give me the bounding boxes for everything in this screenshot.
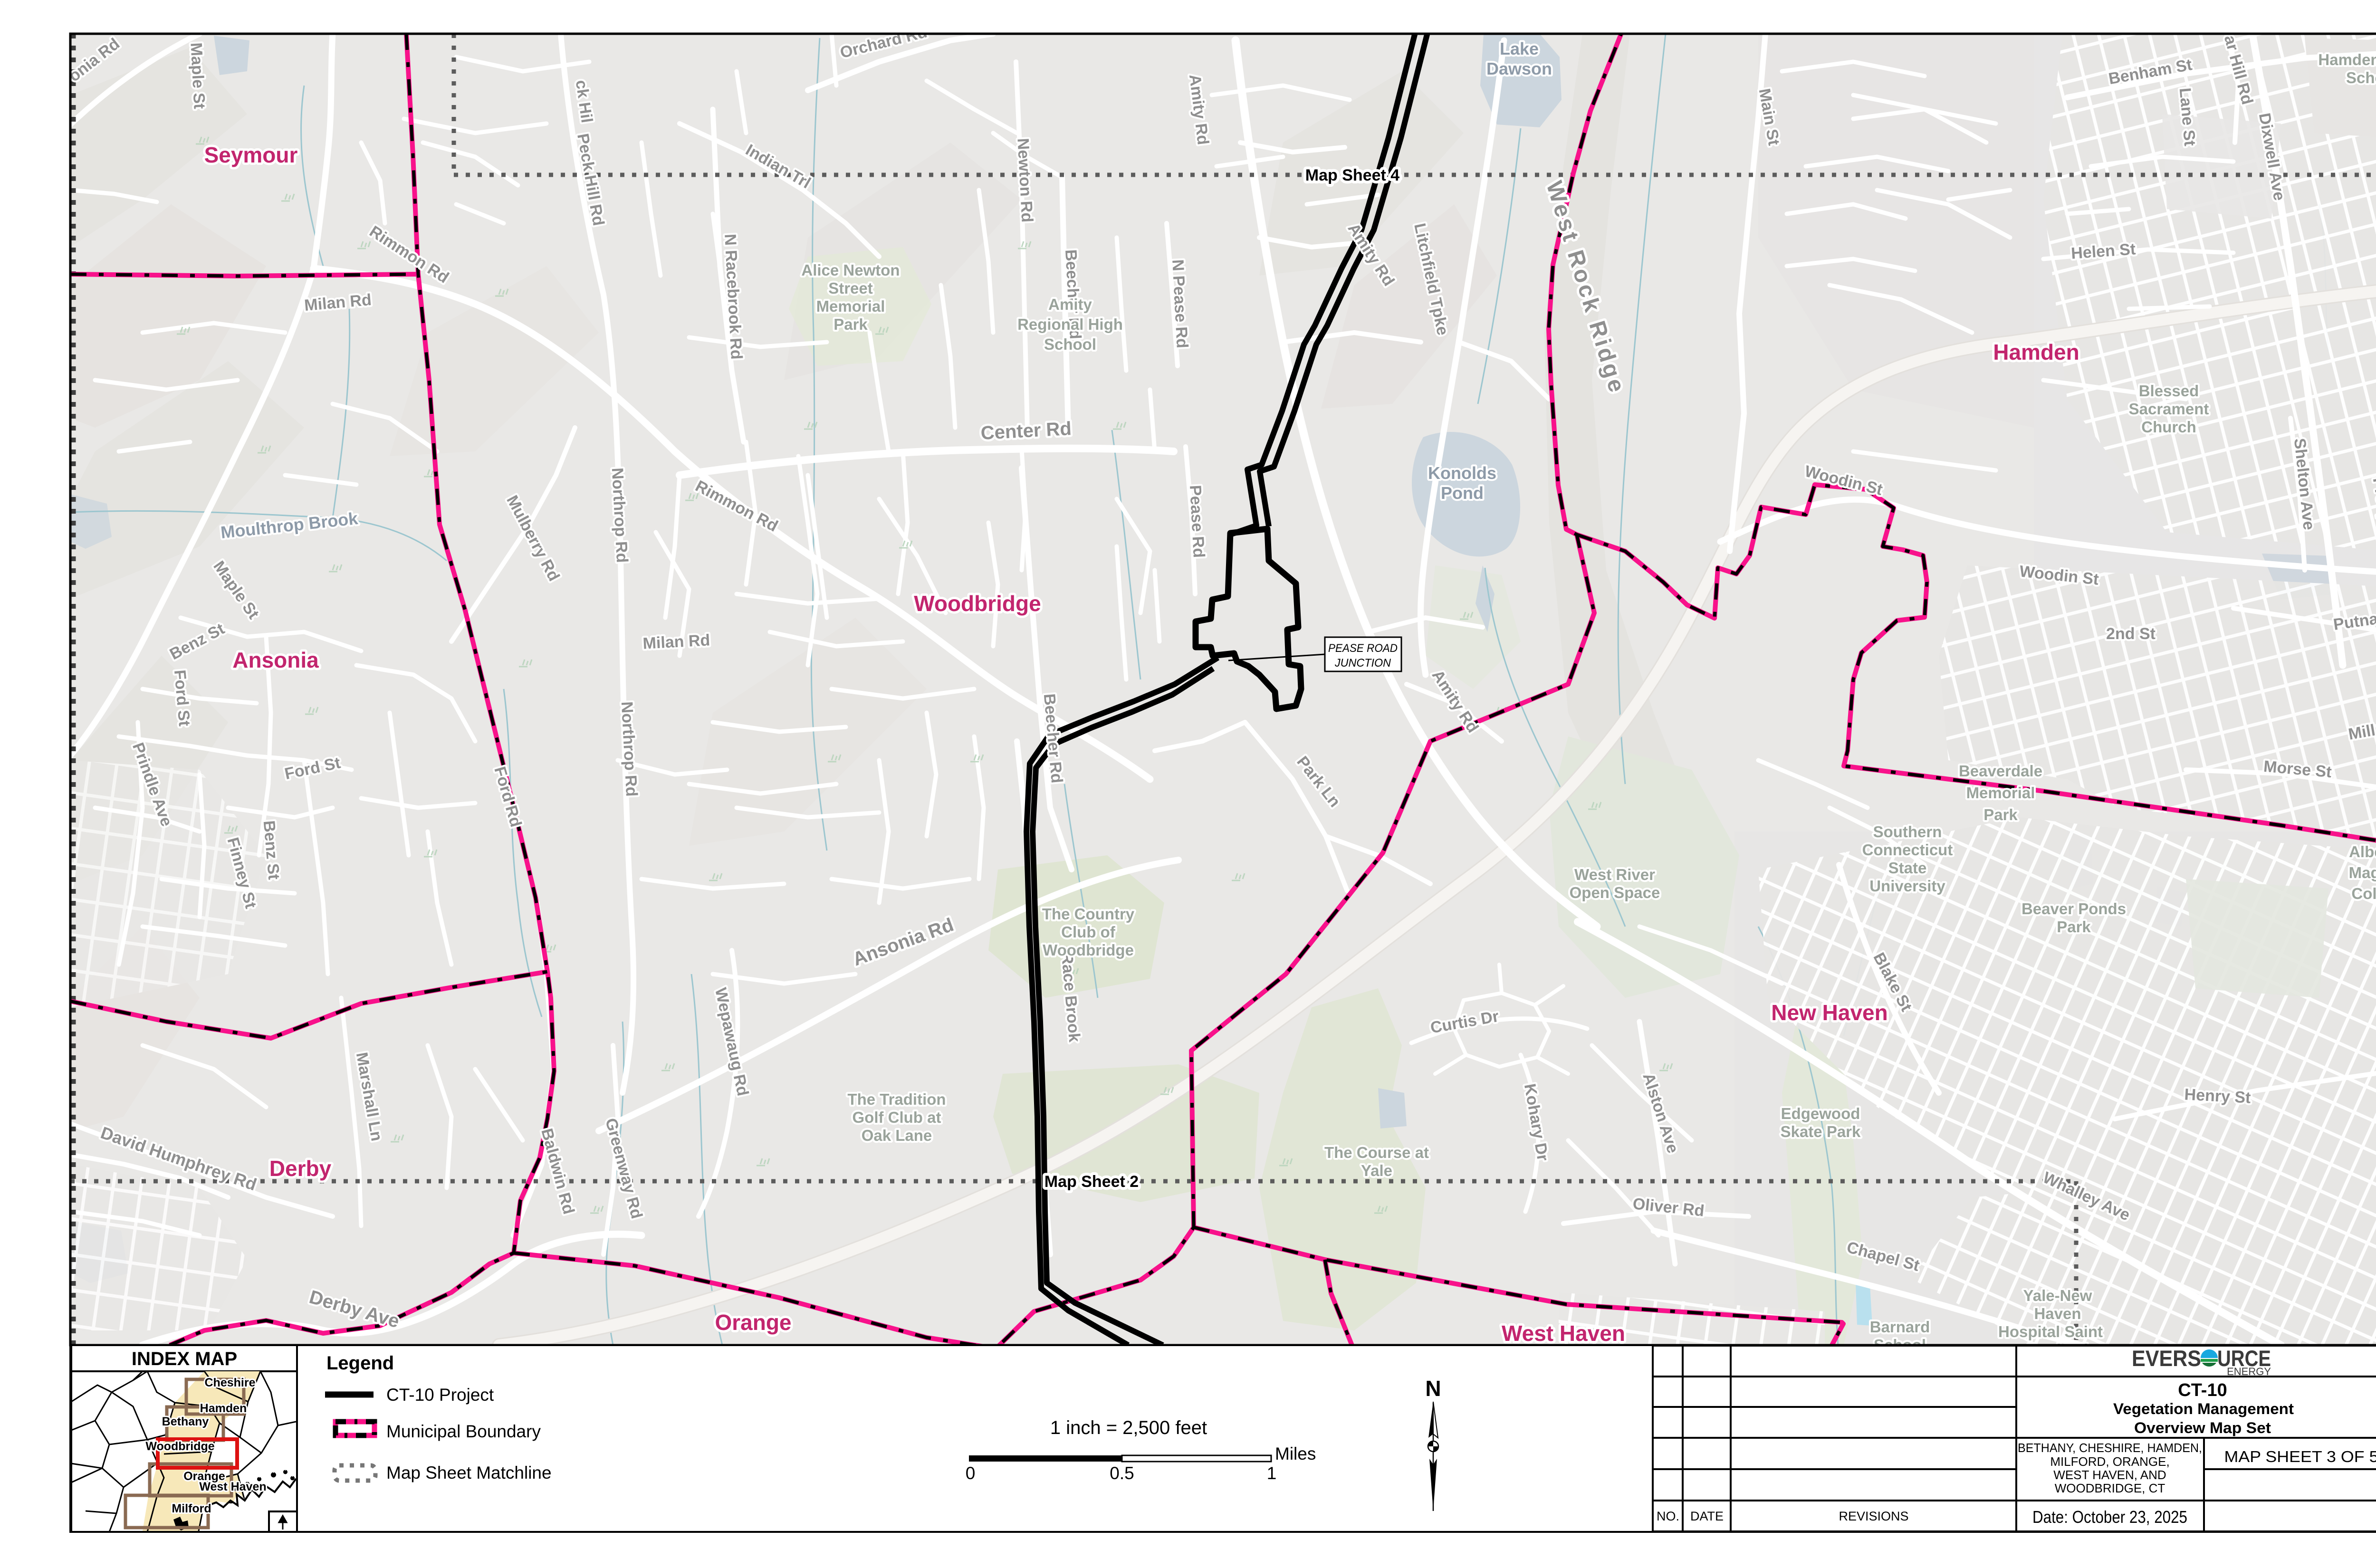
- svg-text:Map Sheet 4: Map Sheet 4: [1305, 166, 1399, 184]
- svg-text:Maple St: Maple St: [187, 42, 208, 110]
- svg-text:Albertus: Albertus: [2349, 843, 2376, 860]
- svg-text:Hamden: Hamden: [1993, 340, 2079, 364]
- svg-text:Yale: Yale: [1361, 1162, 1392, 1179]
- svg-text:School: School: [2346, 69, 2376, 86]
- svg-text:Hamden H: Hamden H: [2318, 51, 2376, 68]
- svg-text:Woodbridge: Woodbridge: [1043, 941, 1134, 959]
- svg-text:Dawson: Dawson: [1486, 59, 1552, 78]
- svg-text:Connecticut: Connecticut: [1862, 841, 1953, 859]
- svg-text:REVISIONS: REVISIONS: [1839, 1509, 1908, 1523]
- svg-text:Orange: Orange: [715, 1310, 791, 1335]
- svg-text:1: 1: [1267, 1463, 1277, 1483]
- svg-text:Memorial: Memorial: [1966, 784, 2035, 802]
- svg-text:Milford: Milford: [172, 1502, 211, 1515]
- svg-text:Amity: Amity: [1048, 296, 1092, 313]
- svg-text:Seymour: Seymour: [204, 143, 298, 167]
- svg-text:The Country: The Country: [1042, 905, 1135, 923]
- svg-text:The Tradition: The Tradition: [847, 1090, 946, 1108]
- svg-text:Park: Park: [834, 316, 868, 333]
- svg-text:Open Space: Open Space: [1570, 884, 1660, 901]
- svg-text:The Course at: The Course at: [1324, 1144, 1429, 1161]
- svg-text:Beaverdale: Beaverdale: [1959, 762, 2042, 780]
- svg-text:Yale-New: Yale-New: [2023, 1287, 2092, 1304]
- svg-text:West Haven: West Haven: [1502, 1321, 1625, 1346]
- svg-text:PEASE ROAD: PEASE ROAD: [1328, 642, 1398, 655]
- svg-text:ENERGY: ENERGY: [2227, 1366, 2271, 1377]
- svg-text:Cheshire: Cheshire: [205, 1376, 256, 1389]
- svg-text:Pease Rd: Pease Rd: [1186, 485, 1208, 558]
- svg-text:1 inch = 2,500 feet: 1 inch = 2,500 feet: [1050, 1417, 1207, 1438]
- svg-text:CT-10: CT-10: [2178, 1380, 2227, 1400]
- svg-text:WEST HAVEN, AND: WEST HAVEN, AND: [2053, 1468, 2166, 1482]
- svg-text:2nd St: 2nd St: [2106, 625, 2156, 643]
- svg-text:Konolds: Konolds: [1428, 463, 1496, 483]
- svg-text:Pond: Pond: [1441, 483, 1484, 503]
- svg-text:Woodbridge: Woodbridge: [914, 591, 1041, 616]
- svg-text:BETHANY, CHESHIRE, HAMDEN,: BETHANY, CHESHIRE, HAMDEN,: [2018, 1441, 2202, 1455]
- svg-text:Henry St: Henry St: [2184, 1085, 2251, 1107]
- svg-text:Hospital Saint: Hospital Saint: [1998, 1323, 2103, 1340]
- svg-text:Date: October 23, 2025: Date: October 23, 2025: [2032, 1507, 2187, 1527]
- svg-text:MAP SHEET 3 OF 5: MAP SHEET 3 OF 5: [2224, 1448, 2376, 1465]
- svg-text:Club of: Club of: [1061, 923, 1116, 941]
- svg-text:WOODBRIDGE, CT: WOODBRIDGE, CT: [2055, 1481, 2165, 1495]
- svg-text:Southern: Southern: [1873, 823, 1942, 841]
- svg-text:Barnard: Barnard: [1870, 1318, 1930, 1336]
- svg-text:Park: Park: [1983, 806, 2018, 823]
- svg-text:Edgewood: Edgewood: [1781, 1105, 1860, 1122]
- svg-text:Map Sheet Matchline: Map Sheet Matchline: [386, 1463, 552, 1482]
- svg-text:NO.: NO.: [1657, 1509, 1679, 1523]
- svg-text:Street: Street: [828, 279, 873, 297]
- svg-text:Overview Map Set: Overview Map Set: [2134, 1419, 2271, 1436]
- svg-text:Derby: Derby: [269, 1156, 332, 1181]
- svg-text:Milan Rd: Milan Rd: [642, 631, 710, 652]
- svg-text:Magnus: Magnus: [2349, 864, 2376, 881]
- svg-text:Skate Park: Skate Park: [1781, 1123, 1861, 1140]
- svg-text:Haven: Haven: [2034, 1305, 2081, 1322]
- svg-text:INDEX MAP: INDEX MAP: [132, 1348, 237, 1369]
- svg-text:Bethany: Bethany: [162, 1415, 209, 1428]
- svg-text:College: College: [2351, 885, 2376, 902]
- svg-text:Vegetation Management: Vegetation Management: [2113, 1400, 2294, 1417]
- svg-text:University: University: [1869, 877, 1945, 895]
- svg-text:Oak Lane: Oak Lane: [862, 1127, 932, 1144]
- svg-text:Map Sheet 2: Map Sheet 2: [1044, 1173, 1139, 1191]
- svg-text:CT-10 Project: CT-10 Project: [386, 1385, 494, 1405]
- svg-text:Hamden: Hamden: [200, 1402, 247, 1415]
- svg-text:West Haven: West Haven: [199, 1480, 266, 1493]
- svg-text:Church: Church: [2141, 418, 2196, 436]
- svg-text:Park: Park: [2057, 918, 2091, 936]
- svg-text:Golf Club at: Golf Club at: [853, 1109, 941, 1126]
- svg-text:Municipal Boundary: Municipal Boundary: [386, 1422, 541, 1441]
- svg-text:0.5: 0.5: [1110, 1463, 1134, 1483]
- svg-text:Regional High: Regional High: [1017, 316, 1123, 333]
- svg-text:Alice Newton: Alice Newton: [801, 261, 900, 279]
- svg-text:New Haven: New Haven: [1771, 1000, 1887, 1025]
- svg-text:Ansonia: Ansonia: [232, 648, 319, 672]
- svg-text:State: State: [1888, 859, 1927, 877]
- svg-text:JUNCTION: JUNCTION: [1334, 657, 1391, 669]
- svg-text:Sacrament: Sacrament: [2129, 400, 2209, 418]
- svg-text:DATE: DATE: [1690, 1509, 1724, 1523]
- svg-text:MILFORD, ORANGE,: MILFORD, ORANGE,: [2050, 1454, 2169, 1469]
- svg-text:School: School: [1044, 335, 1096, 353]
- svg-text:Blessed: Blessed: [2139, 382, 2199, 400]
- svg-text:Miles: Miles: [1275, 1444, 1316, 1463]
- svg-text:EVERS: EVERS: [2132, 1346, 2201, 1371]
- svg-text:N: N: [1425, 1376, 1441, 1401]
- svg-text:Woodbridge: Woodbridge: [145, 1440, 214, 1453]
- svg-text:Beaver Ponds: Beaver Ponds: [2022, 900, 2126, 918]
- svg-text:Lake: Lake: [1500, 39, 1539, 58]
- svg-text:Memorial: Memorial: [816, 297, 885, 315]
- svg-text:Legend: Legend: [326, 1353, 394, 1374]
- svg-text:0: 0: [966, 1463, 976, 1483]
- svg-text:West River: West River: [1574, 866, 1655, 883]
